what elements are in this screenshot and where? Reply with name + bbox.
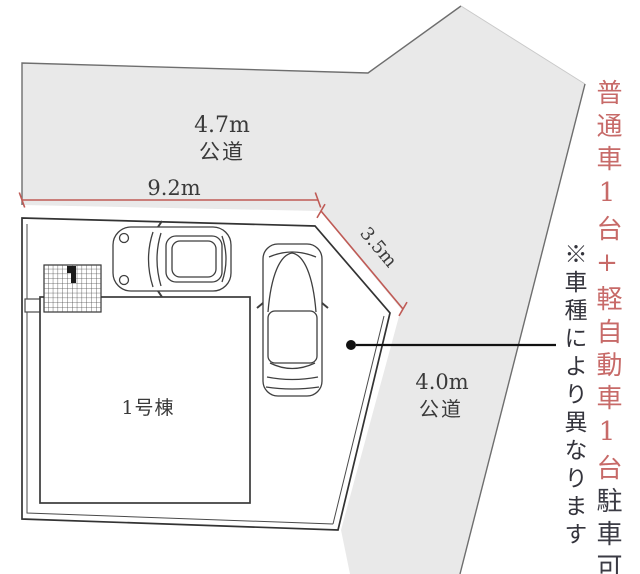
building-label: 1号棟 bbox=[121, 397, 174, 419]
hatched-area-mark bbox=[67, 266, 76, 273]
hatched-area bbox=[44, 265, 101, 312]
road-right-width-label: 4.0m bbox=[415, 370, 468, 394]
parking-note-suffix: 駐車可 bbox=[592, 487, 622, 574]
site-plan-drawing: 4.7m 公道 9.2m 3.5m 4.0m 公道 1号棟 bbox=[0, 0, 640, 574]
parking-note-highlight: 普通車1台+軽自動車1台 bbox=[592, 79, 622, 487]
road-right-type-label: 公道 bbox=[419, 397, 463, 421]
car-top-view-vertical bbox=[257, 244, 328, 396]
frontage-dimension-label: 9.2m bbox=[147, 176, 200, 200]
parking-note: 普通車1台+軽自動車1台駐車可 bbox=[594, 79, 620, 574]
parking-note-disclaimer: ※車種により異なります bbox=[561, 242, 584, 550]
road-top-type-label: 公道 bbox=[199, 140, 245, 164]
site-plan: 4.7m 公道 9.2m 3.5m 4.0m 公道 1号棟 普通車1台+軽自動車… bbox=[0, 0, 640, 574]
hatched-area-mark-2 bbox=[71, 273, 76, 283]
callout-dot bbox=[346, 340, 356, 350]
road-top-width-label: 4.7m bbox=[194, 113, 250, 138]
car-top-view-horizontal bbox=[113, 221, 231, 297]
